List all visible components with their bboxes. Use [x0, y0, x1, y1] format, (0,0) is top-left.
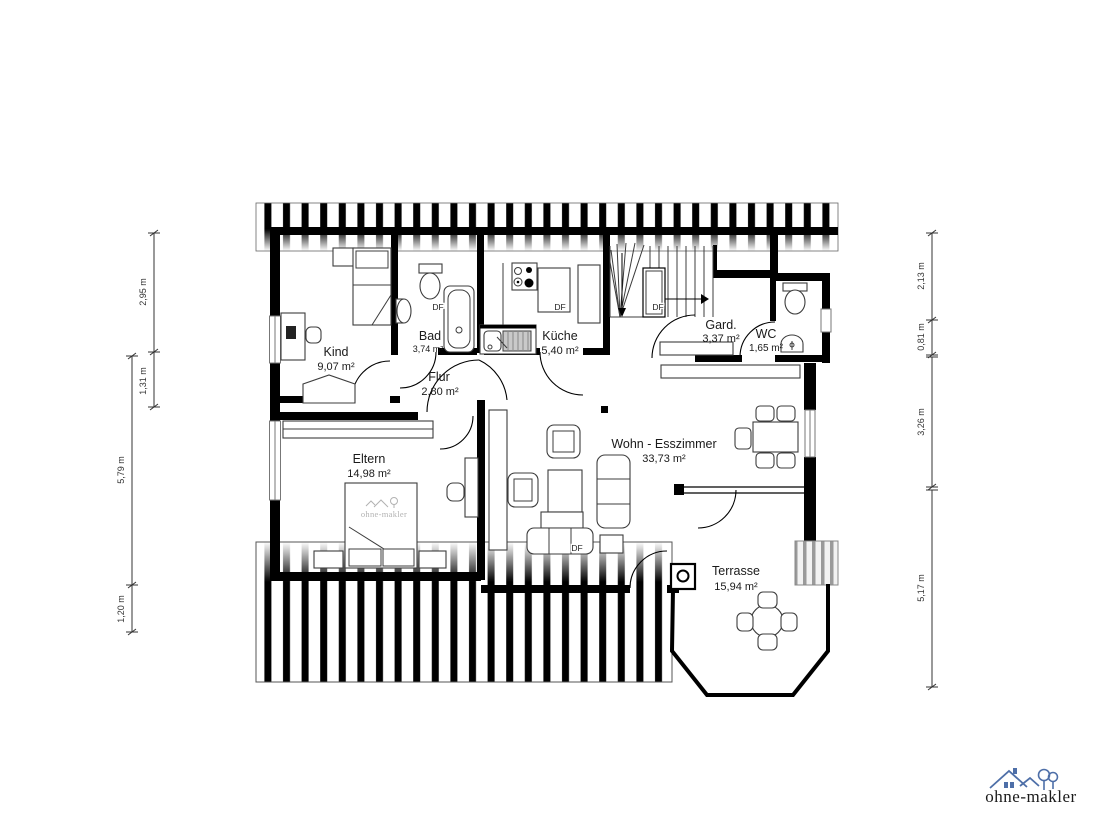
stove [512, 263, 537, 290]
terrace-table [751, 605, 783, 637]
sofa [597, 455, 630, 528]
armchair [547, 425, 580, 458]
room-label-terrasse: Terrasse [712, 564, 760, 578]
room-area-terrasse: 15,94 m² [714, 581, 758, 593]
dimension-left-outer: 5,79 m 1,20 m [116, 353, 138, 635]
chair-eltern [447, 483, 464, 501]
terrace-chair [781, 613, 797, 631]
dining-table [753, 422, 798, 452]
room-area-flur: 2,80 m² [421, 386, 459, 398]
room-area-kueche: 5,40 m² [541, 345, 579, 357]
nightstand [419, 551, 446, 568]
dimension-label: 0,81 m [916, 323, 926, 351]
watermark-text: ohne-makler [361, 509, 407, 519]
floorplan-page: Kind 9,07 m² Bad 3,74 m² Küche 5,40 m² F… [0, 0, 1106, 830]
bed-kind [353, 248, 391, 325]
room-label-kind: Kind [323, 345, 348, 359]
brand-logo: ohne-makler [985, 768, 1076, 806]
dining-chair [777, 453, 795, 468]
room-label-gard: Gard. [705, 318, 736, 332]
room-label-bad: Bad [419, 329, 441, 343]
chair-kind [306, 327, 321, 343]
dimension-label: 5,79 m [116, 456, 126, 484]
dining-chair [735, 428, 751, 449]
door-kueche [540, 352, 583, 395]
dining-chair [777, 406, 795, 421]
desk-eltern [465, 458, 478, 517]
room-area-kind: 9,07 m² [317, 361, 355, 373]
sofa-small [527, 528, 593, 554]
logo-house-icon [990, 768, 1039, 788]
door-terrasse-east [698, 490, 736, 528]
dimension-label: 1,20 m [116, 595, 126, 623]
skylight-label-wohn: DF [571, 543, 582, 553]
window-terrasse-block [795, 541, 838, 585]
terrace-chair [758, 634, 777, 650]
cabinet [489, 410, 507, 550]
fireplace-dot [601, 406, 608, 413]
wardrobe-kind [303, 375, 355, 403]
room-label-kueche: Küche [542, 329, 577, 343]
room-area-gard: 3,37 m² [702, 333, 740, 345]
room-area-bad: 3,74 m² [413, 344, 444, 354]
coffee-table [541, 512, 583, 528]
terrace-chair [758, 592, 777, 608]
room-area-eltern: 14,98 m² [347, 468, 391, 480]
dimension-label: 5,17 m [916, 574, 926, 602]
nightstand [314, 551, 343, 568]
terrace-chair [737, 613, 753, 631]
dimension-left-inner: 2,95 m 1,31 m [138, 230, 160, 410]
dimension-label: 3,26 m [916, 408, 926, 436]
skylight-label-kueche: DF [554, 302, 565, 312]
room-area-wohn: 33,73 m² [642, 453, 686, 465]
furniture-wohn [489, 406, 798, 554]
toilet-bad [419, 264, 442, 273]
floorplan-canvas: Kind 9,07 m² Bad 3,74 m² Küche 5,40 m² F… [0, 0, 1106, 830]
dimension-right: 2,13 m 0,81 m 3,26 m 5,17 m [916, 230, 938, 690]
furniture-kind [281, 248, 391, 403]
armchair [508, 473, 538, 507]
dimension-label: 2,13 m [916, 262, 926, 290]
skylight-label-stairs: DF [652, 302, 663, 312]
logo-text: ohne-makler [985, 787, 1076, 806]
dining-chair [756, 453, 774, 468]
door-eltern [440, 416, 473, 449]
room-label-wohn: Wohn - Esszimmer [611, 437, 716, 451]
furniture-kueche [480, 263, 600, 354]
door-flur-east [479, 360, 507, 400]
monitor [286, 326, 296, 339]
side-table [600, 535, 623, 553]
skylight-label-bad: DF [432, 302, 443, 312]
dining-chair [756, 406, 774, 421]
stair-arrow-right [701, 294, 709, 304]
sideboard [661, 365, 800, 378]
terrace-outline [672, 584, 828, 695]
room-label-flur: Flur [428, 370, 450, 384]
fridge [578, 265, 600, 323]
room-label-wc: WC [756, 327, 777, 341]
tv-chair [548, 470, 582, 512]
dimension-label: 1,31 m [138, 367, 148, 395]
shelf-kind [333, 248, 354, 266]
room-label-eltern: Eltern [353, 452, 386, 466]
door-kind [352, 361, 390, 399]
dimension-label: 2,95 m [138, 278, 148, 306]
room-area-wc: 1,65 m² [749, 343, 784, 354]
